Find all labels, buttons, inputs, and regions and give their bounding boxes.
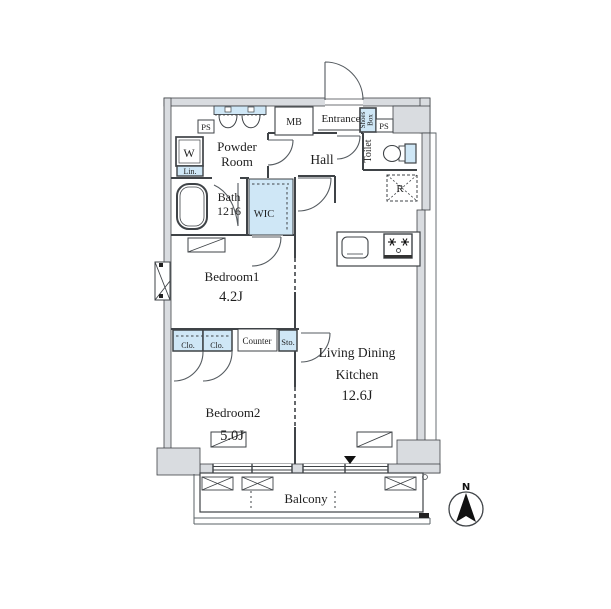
bedroom1-door [252,237,281,266]
ldk-size-label: 12.6J [341,388,372,404]
hall-label: Hall [310,152,333,167]
bathtub [177,184,207,229]
entrance-label: Entrance [321,113,360,125]
closet1-label: Clo. [181,341,195,350]
compass [449,492,483,526]
left-wall-window [155,262,170,300]
balcony-access-marker [344,456,356,464]
wic-closet [249,179,293,235]
entrance-door [325,62,363,100]
hall-door [298,178,331,211]
toilet-door [337,136,360,159]
wic-label: WIC [254,209,274,220]
bedroom1-beam [188,238,225,252]
stove [384,234,412,258]
fridge-label: R [396,183,404,195]
bath-size-label: 1216 [217,204,241,218]
balcony-label: Balcony [284,491,328,506]
linen-label: Lin. [183,167,196,176]
washer-label: W [183,146,195,160]
floorplan-page: PS MB Entrance Shoes Box PS Powder Room … [0,0,611,609]
ps-right-label: PS [379,121,389,131]
closet2-label: Clo. [210,341,224,350]
counter-label: Counter [243,336,272,346]
storage-label: Sto. [281,337,294,347]
balcony-drain [419,513,429,518]
bath-label: Bath [218,190,241,204]
ldk-beam [357,432,392,447]
powder-room-label-2: Room [221,154,253,169]
bedroom1-size-label: 4.2J [219,289,243,305]
balcony-hatch-units [202,477,416,490]
entrance-opening [325,97,363,107]
bedroom2-size-label: 5.0J [220,428,244,444]
washbasin-counter [214,106,266,128]
shoes-box-label-2: Box [367,114,375,126]
ps-left-label: PS [201,122,211,132]
toilet-label: Toilet [363,139,374,162]
ldk-label-1: Living Dining [319,345,396,360]
toilet-fixture [384,144,417,163]
ldk-label-2: Kitchen [336,367,379,382]
compass-needle [456,493,476,522]
kitchen-sink [342,237,368,258]
mb-label: MB [286,117,302,128]
bedroom2-label: Bedroom2 [206,405,261,420]
bedroom1-label: Bedroom1 [205,269,260,284]
powder-room-door [268,140,293,165]
compass-north-label: N [462,482,470,493]
kitchen-counter [337,232,420,266]
powder-room-label-1: Powder [217,139,257,154]
floorplan-drawing: PS MB Entrance Shoes Box PS Powder Room … [0,0,611,609]
closet-doors [174,352,232,381]
